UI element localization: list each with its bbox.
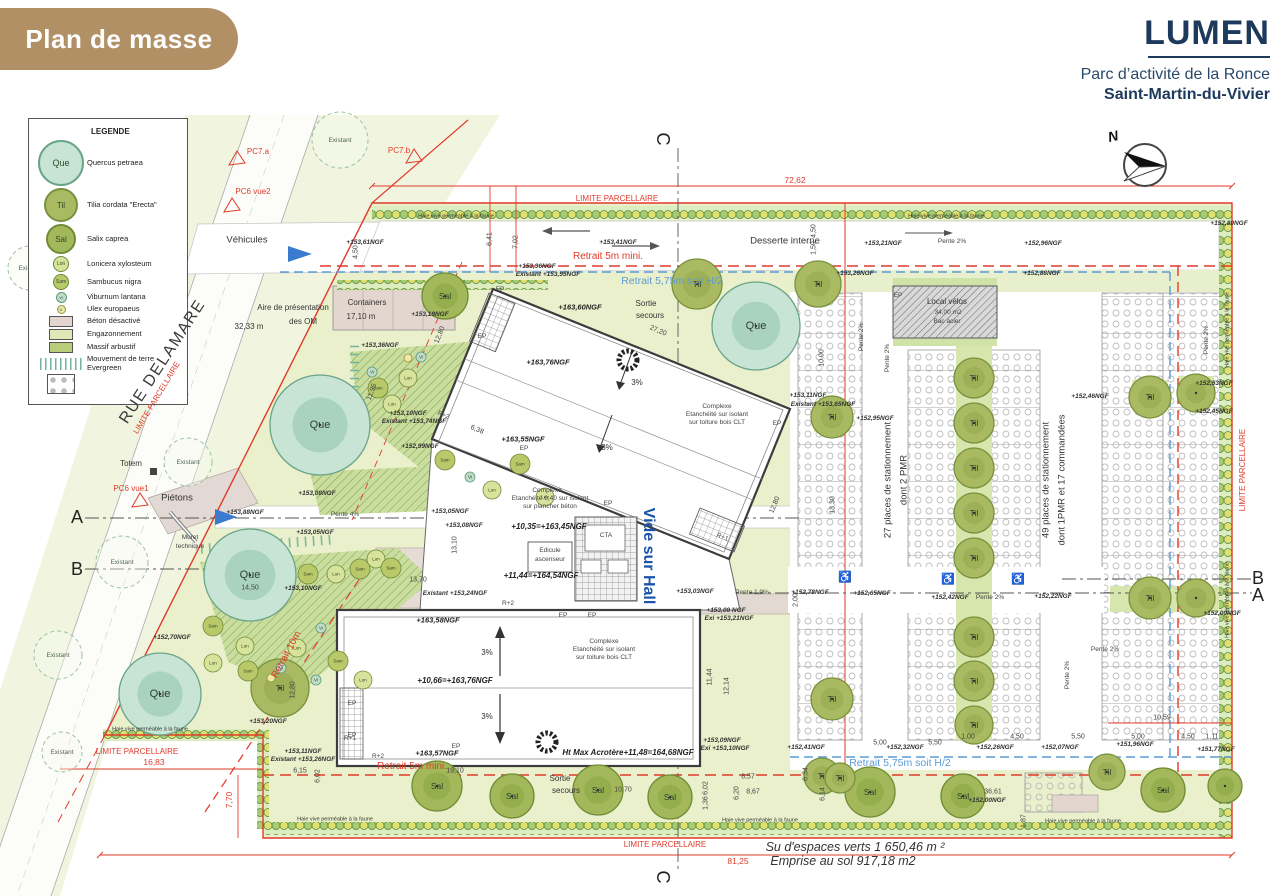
tree-til: Til [795, 261, 841, 307]
tree-til: Til [1129, 577, 1171, 619]
svg-text:Til: Til [828, 694, 837, 704]
shrub-sam: Sam [238, 661, 258, 681]
tree-que: Que [204, 529, 296, 621]
sheet-title-badge: Plan de masse [0, 8, 238, 70]
legend-item-label: Sambucus nigra [87, 278, 141, 287]
svg-text:Lon: Lon [388, 402, 396, 407]
circle-sam-icon: Sam [53, 274, 69, 290]
svg-text:Til: Til [970, 632, 979, 642]
tree-til: Til [811, 396, 853, 438]
shrub-lon: Lon [383, 395, 401, 413]
legend-item-label: Ulex europaeus [87, 305, 140, 314]
shrub-sam: Sam [435, 450, 455, 470]
legend-item: LonLonicera xylosteum [35, 256, 183, 272]
tree-til: Til [1129, 376, 1171, 418]
project-location: Saint-Martin-du-Vivier [1081, 86, 1270, 104]
tree-til-icon: Til [44, 188, 78, 222]
svg-text:Til: Til [276, 683, 285, 693]
tree-til: Til [954, 448, 994, 488]
svg-text:Sal: Sal [664, 792, 676, 802]
shrub-vi: Vi [276, 663, 286, 673]
legend-item: Mouvement de terre Evergreen [35, 355, 183, 372]
legend-item: Béton désactivé [35, 316, 183, 327]
svg-text:Lon: Lon [293, 646, 301, 651]
swatch-massif-icon [49, 342, 73, 353]
comb-icon [40, 358, 82, 370]
project-name: LUMEN [1081, 16, 1270, 50]
shrub-lon: Lon [236, 637, 254, 655]
svg-text:Existant: Existant [328, 137, 351, 144]
svg-text:Sal: Sal [1157, 785, 1169, 795]
tree-til: Til [954, 661, 994, 701]
shrub-vi: Vi [316, 623, 326, 633]
svg-text:Existant: Existant [110, 559, 133, 566]
svg-text:Til: Til [814, 279, 823, 289]
shrub-vi: Vi [416, 352, 426, 362]
svg-text:Sal: Sal [431, 781, 443, 791]
parking-layer [788, 266, 1232, 812]
parking-stalls [798, 293, 1222, 740]
svg-text:Sam: Sam [208, 624, 218, 629]
site-plan-drawing: QueQueQueQueTilTilTilTilTilTilTilTilTilT… [0, 0, 1280, 896]
plan-de-masse-sheet: QueQueQueQueTilTilTilTilTilTilTilTilTilT… [0, 0, 1280, 896]
svg-text:Sal: Sal [957, 791, 969, 801]
svg-text:Existant: Existant [46, 652, 69, 659]
legend-item: ViViburnum lantana [35, 292, 183, 303]
svg-text:Lon: Lon [541, 495, 549, 500]
legend-item-label: Tilia cordata "Erecta" [87, 201, 157, 210]
svg-text:Lon: Lon [209, 661, 217, 666]
tree-til: Til [825, 763, 855, 793]
tree-til [1177, 579, 1215, 617]
svg-text:Til: Til [970, 720, 979, 730]
svg-text:Sam: Sam [333, 659, 343, 664]
svg-text:Sam: Sam [373, 386, 383, 391]
tree-til: Til [1089, 754, 1125, 790]
shrub-vi: Vi [311, 675, 321, 685]
north-arrow-icon [1124, 144, 1166, 186]
tree-sal: Sal [490, 774, 534, 818]
svg-text:Sal: Sal [439, 291, 451, 301]
tree-ex: Existant [312, 112, 368, 168]
tree-sal: Sal [573, 765, 623, 815]
svg-text:Vi: Vi [314, 678, 318, 683]
svg-text:Sal: Sal [864, 787, 876, 797]
legend-title: LEGENDE [91, 127, 183, 136]
shrub-u [267, 674, 275, 682]
svg-text:Sam: Sam [515, 462, 525, 467]
tree-til: Til [954, 403, 994, 443]
shrub-u [404, 354, 412, 362]
shrub-sam: Sam [350, 559, 370, 579]
svg-text:Vi: Vi [279, 666, 283, 671]
svg-text:Lon: Lon [488, 488, 496, 493]
building-2 [337, 610, 700, 766]
legend-item: SamSambucus nigra [35, 274, 183, 290]
tree-que: Que [270, 375, 370, 475]
svg-text:Til: Til [970, 418, 979, 428]
tree-que: Que [712, 282, 800, 370]
svg-text:Lon: Lon [372, 557, 380, 562]
tree-sal: Sal [422, 273, 468, 319]
swatch-dots-icon [47, 374, 75, 394]
svg-text:Sam: Sam [303, 572, 313, 577]
tree-sal: Sal [648, 775, 692, 819]
shrub-vi: Vi [465, 472, 475, 482]
project-subtitle: Parc d’activité de la Ronce [1081, 66, 1270, 84]
svg-text:Que: Que [150, 688, 171, 700]
svg-text:Sam: Sam [355, 567, 365, 572]
legend: LEGENDE QueQuercus petraeaTilTilia corda… [28, 118, 188, 405]
swatch-gazon-icon [49, 329, 73, 340]
svg-text:Sam: Sam [440, 458, 450, 463]
shrub-lon: Lon [354, 671, 372, 689]
shrub-lon: Lon [204, 654, 222, 672]
circle-u-icon: U [57, 305, 66, 314]
legend-item: SalSalix caprea [35, 224, 183, 254]
legend-item: Engazonnement [35, 329, 183, 340]
legend-item-label: Quercus petraea [87, 159, 143, 168]
tree-ex: Existant [42, 732, 82, 772]
svg-text:Lon: Lon [359, 678, 367, 683]
shrub-lon: Lon [536, 488, 554, 506]
shrub-lon: Lon [399, 369, 417, 387]
shrub-lon: Lon [288, 639, 306, 657]
swatch-beton-icon [49, 316, 73, 327]
shrub-sam: Sam [381, 558, 401, 578]
tree-til: Til [954, 617, 994, 657]
svg-text:Sam: Sam [386, 566, 396, 571]
elevator-shed [528, 542, 572, 572]
svg-text:Que: Que [310, 419, 331, 431]
svg-text:Lon: Lon [404, 376, 412, 381]
legend-item-label: Salix caprea [87, 235, 128, 244]
legend-item [35, 374, 183, 394]
tree-que-icon: Que [38, 140, 84, 186]
tree-sal: Sal [941, 774, 985, 818]
legend-item-label: Mouvement de terre Evergreen [87, 355, 183, 372]
tree-til: Til [954, 538, 994, 578]
svg-text:Sam: Sam [243, 669, 253, 674]
svg-text:Vi: Vi [319, 626, 323, 631]
legend-item-label: Viburnum lantana [87, 293, 146, 302]
tree-sal-icon: Sal [46, 224, 76, 254]
svg-text:Til: Til [970, 508, 979, 518]
tree-til: Til [811, 678, 853, 720]
svg-text:Til: Til [1103, 767, 1112, 777]
tree-til: Til [954, 358, 994, 398]
tree-til: Til [955, 706, 993, 744]
svg-text:Til: Til [693, 279, 702, 289]
tree-sal: Sal [1141, 768, 1185, 812]
shrub-vi: Vi [367, 367, 377, 377]
legend-item-label: Béton désactivé [87, 317, 140, 326]
tree-ex: Existant [96, 536, 148, 588]
svg-text:Lon: Lon [241, 644, 249, 649]
svg-text:Existant: Existant [176, 459, 199, 466]
tree-ex: Existant [164, 438, 212, 486]
tree-ex: Existant [34, 631, 82, 679]
shrub-lon: Lon [483, 481, 501, 499]
svg-text:Vi: Vi [419, 355, 423, 360]
svg-text:Sal: Sal [506, 791, 518, 801]
svg-text:Til: Til [970, 676, 979, 686]
tree-til: Til [672, 259, 722, 309]
svg-text:Vi: Vi [468, 475, 472, 480]
shrub-sam: Sam [368, 378, 388, 398]
svg-text:Til: Til [828, 412, 837, 422]
tree-til: Til [954, 493, 994, 533]
legend-item: TilTilia cordata "Erecta" [35, 188, 183, 222]
svg-text:Existant: Existant [50, 749, 73, 756]
shrub-sam: Sam [203, 616, 223, 636]
tree-sal [1208, 769, 1242, 803]
svg-text:Sal: Sal [592, 785, 604, 795]
tree-que: Que [119, 653, 201, 735]
svg-text:Til: Til [970, 463, 979, 473]
bike-shelter [893, 278, 997, 346]
svg-text:Til: Til [1146, 593, 1155, 603]
circle-vi-icon: Vi [56, 292, 67, 303]
project-title-block: LUMEN Parc d’activité de la Ronce Saint-… [1081, 16, 1270, 104]
shrub-sam: Sam [328, 651, 348, 671]
tree-til [1177, 374, 1215, 412]
legend-item: QueQuercus petraea [35, 140, 183, 186]
legend-item: UUlex europaeus [35, 305, 183, 314]
shrub-sam: Sam [510, 454, 530, 474]
svg-text:Vi: Vi [370, 370, 374, 375]
svg-text:Lon: Lon [332, 572, 340, 577]
title-underline [1148, 56, 1270, 58]
shrub-lon: Lon [327, 565, 345, 583]
totem [150, 468, 157, 475]
svg-text:Que: Que [240, 569, 261, 581]
circle-lon-icon: Lon [53, 256, 69, 272]
svg-text:Til: Til [970, 373, 979, 383]
svg-text:Til: Til [836, 773, 845, 783]
svg-text:Til: Til [970, 553, 979, 563]
legend-item-label: Lonicera xylosteum [87, 260, 152, 269]
svg-text:Til: Til [1146, 392, 1155, 402]
shrub-sam: Sam [298, 564, 318, 584]
legend-item-label: Massif arbustif [87, 343, 135, 352]
tree-sal: Sal [412, 761, 462, 811]
legend-item-label: Engazonnement [87, 330, 142, 339]
legend-item: Massif arbustif [35, 342, 183, 353]
svg-text:Que: Que [746, 320, 767, 332]
